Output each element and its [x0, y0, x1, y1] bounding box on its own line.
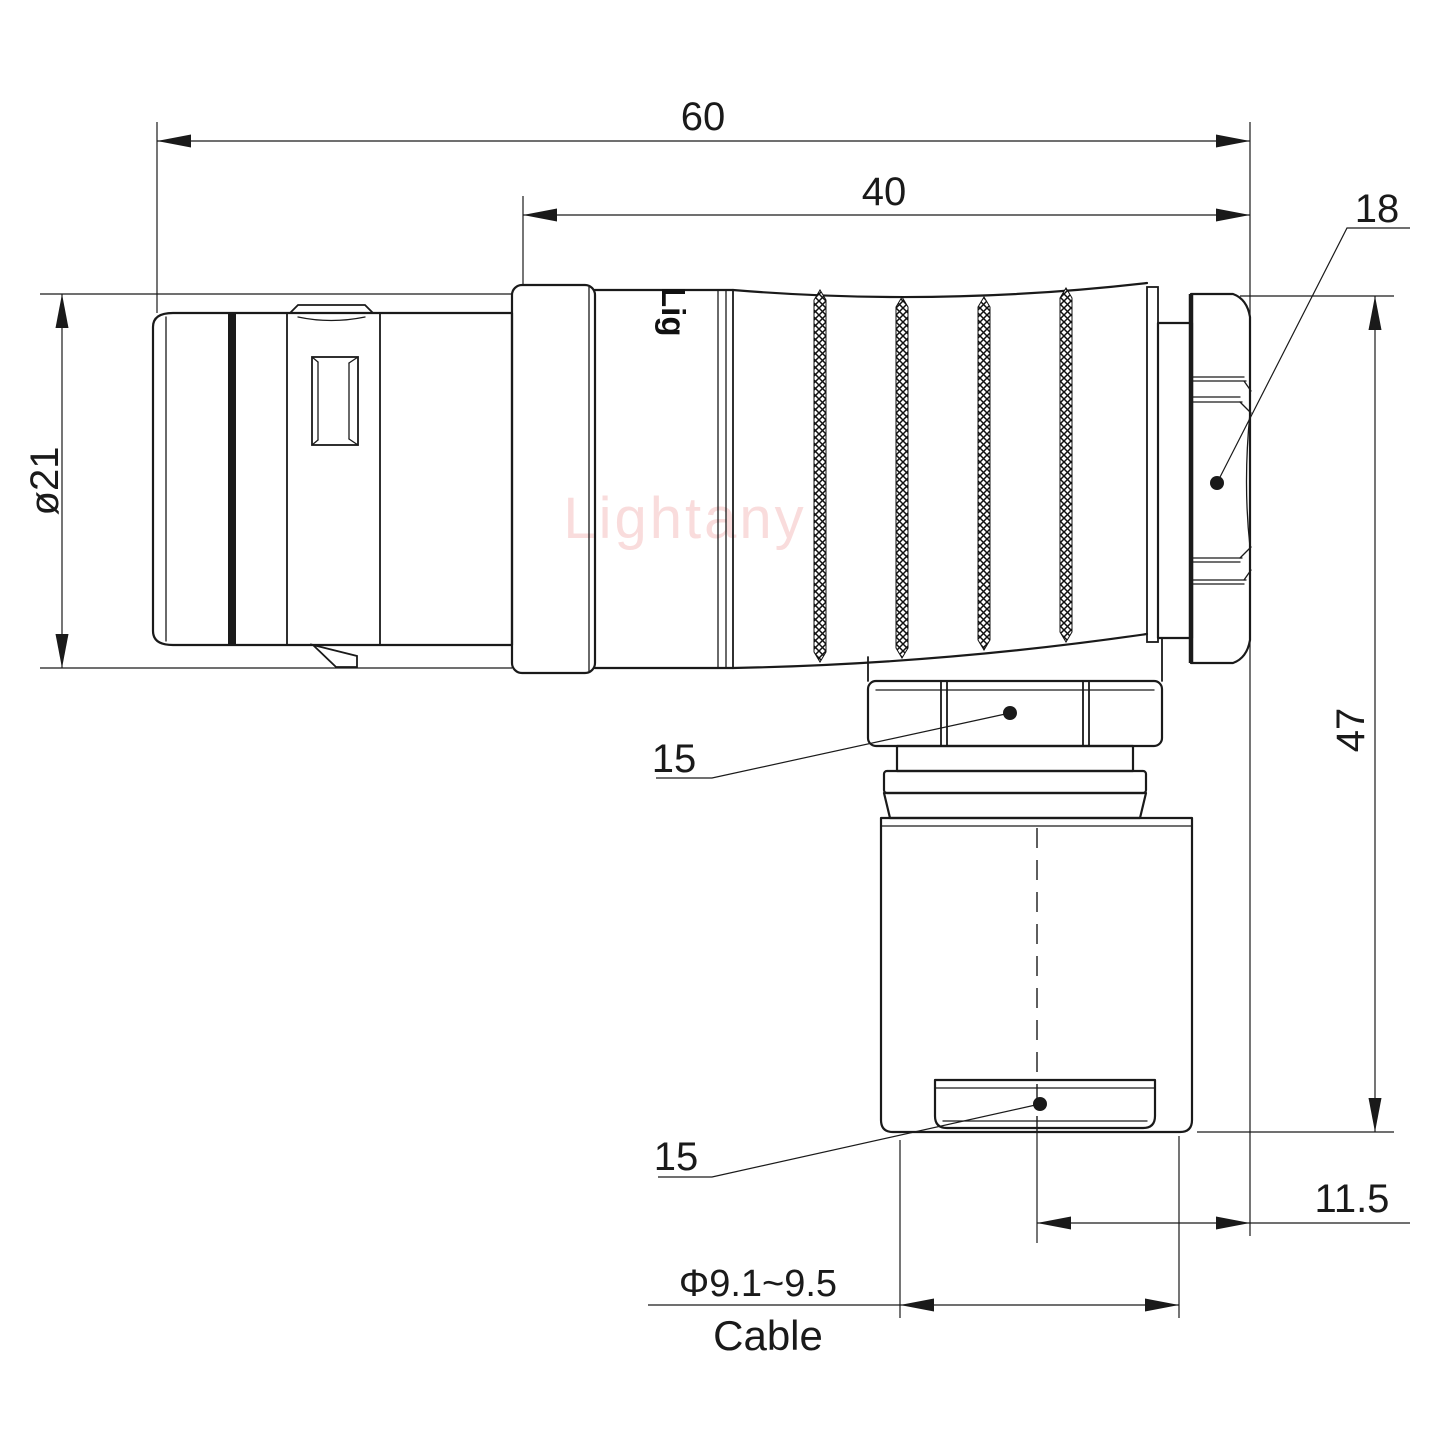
coupling-ring — [512, 285, 595, 673]
leader-coupling-nut: 15 — [652, 706, 1017, 781]
barrel-band — [228, 313, 236, 645]
end-ring — [1147, 287, 1158, 642]
dimension-height: 47 — [1329, 296, 1382, 1132]
leader-cable-clamp: 15 — [654, 1097, 1047, 1179]
gland-tube — [881, 818, 1192, 1132]
knurled-section — [733, 283, 1158, 668]
body-print-text: Lig — [655, 287, 692, 336]
plug-barrel — [153, 305, 512, 667]
latch-tab-bottom — [313, 645, 357, 667]
dimension-body-diameter: ø21 — [23, 294, 69, 668]
dim-label-18: 18 — [1355, 187, 1400, 231]
dimension-overall-length: 60 — [157, 95, 1250, 148]
connector-side-view: Lig — [153, 283, 1251, 1132]
mid-body: Lig — [595, 287, 733, 668]
latch-window — [312, 357, 358, 445]
dim-label-11-5: 11.5 — [1315, 1177, 1390, 1221]
dimension-cable-offset: 11.5 — [1037, 1177, 1410, 1230]
dimension-cable-diameter: Φ9.1~9.5 Cable — [648, 1263, 1179, 1359]
dim-label-60: 60 — [681, 95, 726, 139]
dim-label-cable-range: Φ9.1~9.5 — [679, 1263, 837, 1305]
latch-tab-top — [290, 305, 373, 313]
gland-steps — [884, 746, 1146, 818]
watermark-text: Lightany — [563, 486, 806, 551]
technical-drawing-sheet: Lightany — [0, 0, 1440, 1440]
dim-label-47: 47 — [1329, 708, 1373, 753]
dimension-rear-length: 40 — [523, 170, 1250, 222]
dim-label-15-clamp: 15 — [654, 1135, 699, 1179]
connector-drawing: Lightany — [0, 0, 1440, 1440]
dim-label-15-coupling: 15 — [652, 737, 697, 781]
leader-nut-size: 18 — [1210, 187, 1410, 490]
thread-collar — [1158, 323, 1192, 638]
dim-label-40: 40 — [862, 170, 907, 214]
dim-label-diameter-21: ø21 — [23, 447, 67, 516]
dim-label-cable: Cable — [713, 1312, 823, 1359]
knurl-strips — [814, 288, 1072, 662]
